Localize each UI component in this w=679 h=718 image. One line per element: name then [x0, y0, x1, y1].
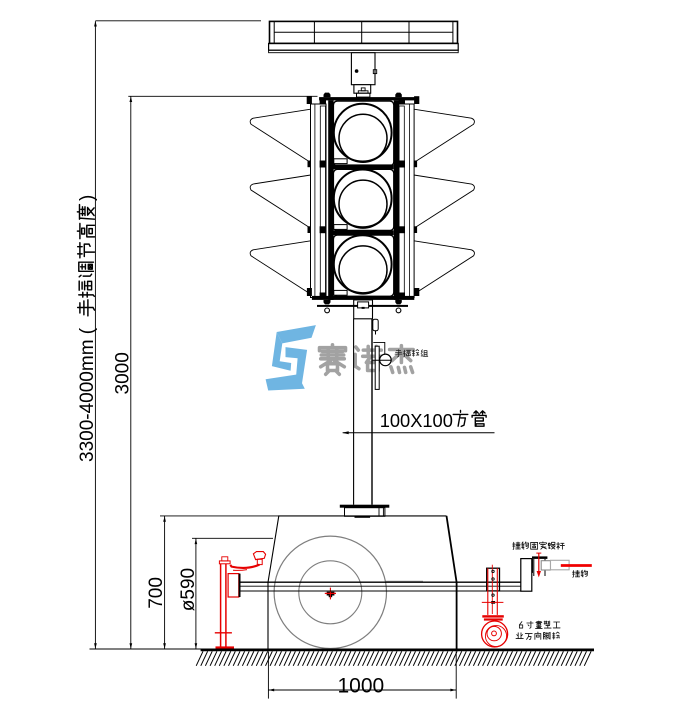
svg-text:700: 700 — [146, 577, 167, 609]
svg-text:1000: 1000 — [338, 674, 385, 697]
svg-text:100X100: 100X100 — [380, 410, 453, 431]
svg-text:): ) — [77, 195, 98, 201]
svg-text:ø590: ø590 — [178, 568, 199, 611]
svg-text:3300-4000mm (: 3300-4000mm ( — [77, 327, 98, 462]
svg-text:3000: 3000 — [113, 352, 134, 394]
